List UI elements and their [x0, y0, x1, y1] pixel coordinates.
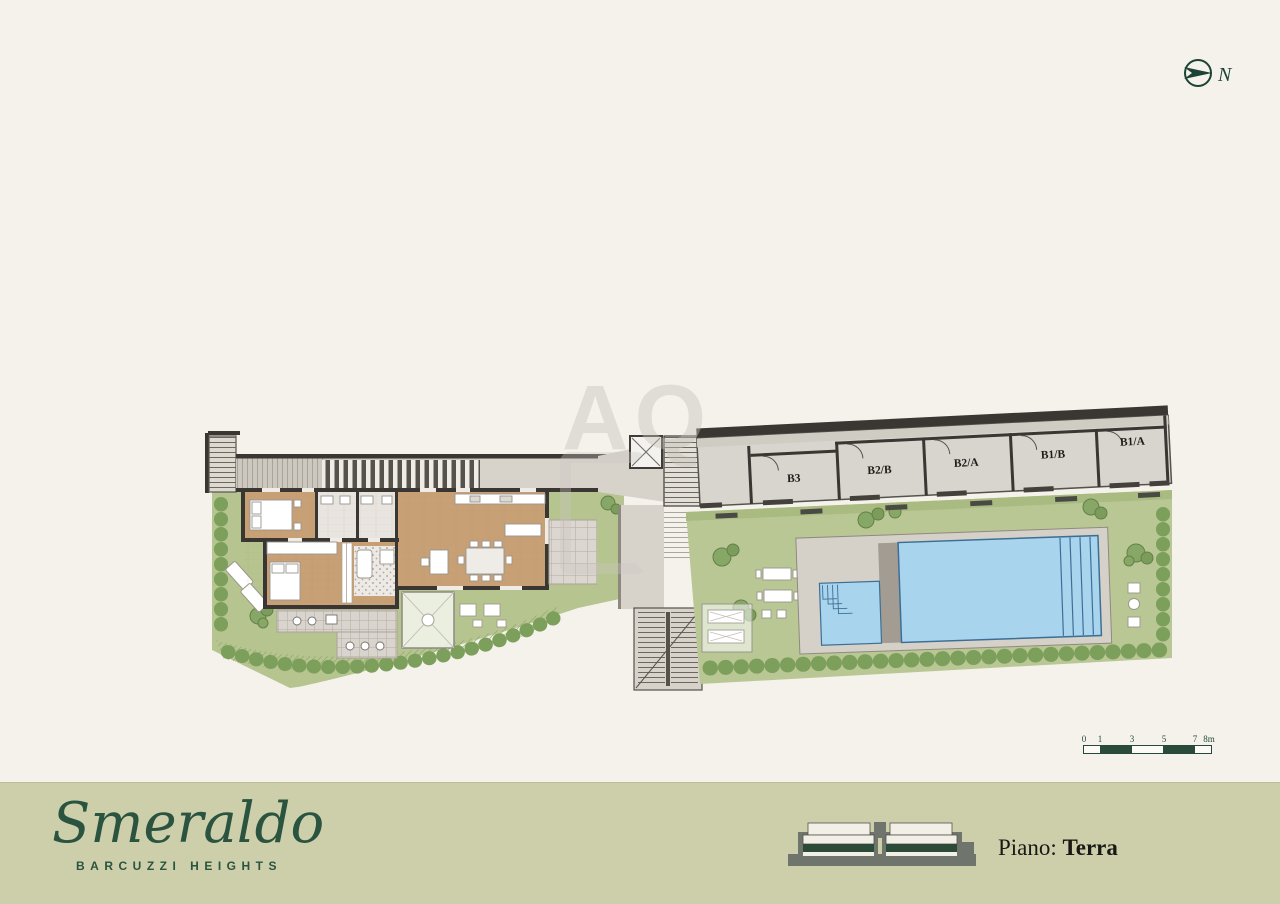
scale-tick: 0 — [1082, 734, 1087, 744]
north-indicator: N — [1178, 52, 1248, 94]
garage-unit-label: B2/A — [954, 457, 980, 470]
floor-value: Terra — [1063, 835, 1118, 860]
footer-band: Smeraldo BARCUZZI HEIGHTS Pi — [0, 782, 1280, 904]
garage-unit-label: B1/A — [1120, 436, 1146, 449]
floor-indicator: Piano: Terra — [998, 835, 1118, 861]
scale-tick: 1 — [1098, 734, 1103, 744]
poolside-fixtures — [1128, 583, 1140, 627]
north-label: N — [1217, 64, 1233, 86]
brand-subtitle: BARCUZZI HEIGHTS — [76, 859, 282, 873]
garage-unit-label: B1/B — [1041, 448, 1066, 461]
garage-unit-label: B3 — [787, 472, 801, 485]
brand-logo: Smeraldo — [52, 791, 324, 856]
floorplan-page: B3 B2/B B2/A B1/B B1/A AQ — [0, 0, 1280, 904]
scale-tick: 3 — [1130, 734, 1135, 744]
scale-tick: 5 — [1162, 734, 1167, 744]
north-arrow-icon — [1184, 67, 1212, 79]
scale-tick: 7 — [1193, 734, 1198, 744]
scale-bar-segments — [1083, 745, 1212, 754]
scale-bar: 0 1 3 5 7 8m — [1083, 734, 1213, 758]
scale-tick: 8m — [1203, 734, 1215, 744]
elevator — [630, 436, 662, 468]
patio-pergola — [402, 592, 454, 648]
pool-pergola — [702, 604, 752, 652]
floor-label: Piano: — [998, 835, 1057, 860]
site-plan: B3 B2/B B2/A B1/B B1/A — [0, 0, 1280, 783]
pool-deck — [796, 527, 1112, 654]
building-elevation-icon — [782, 816, 982, 871]
stairs-lower — [634, 608, 702, 690]
louver-pergola — [322, 460, 480, 492]
garage-unit-label: B2/B — [867, 464, 892, 477]
